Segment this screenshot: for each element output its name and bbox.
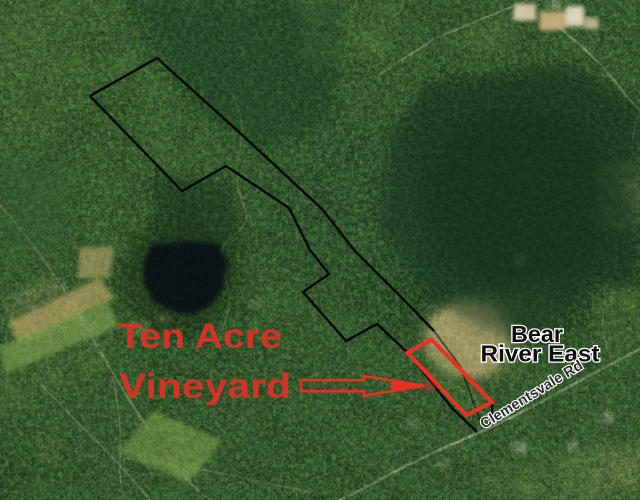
svg-text:River East: River East: [481, 341, 600, 367]
svg-text:Vineyard: Vineyard: [119, 366, 291, 406]
svg-text:Ten Acre: Ten Acre: [118, 316, 282, 356]
